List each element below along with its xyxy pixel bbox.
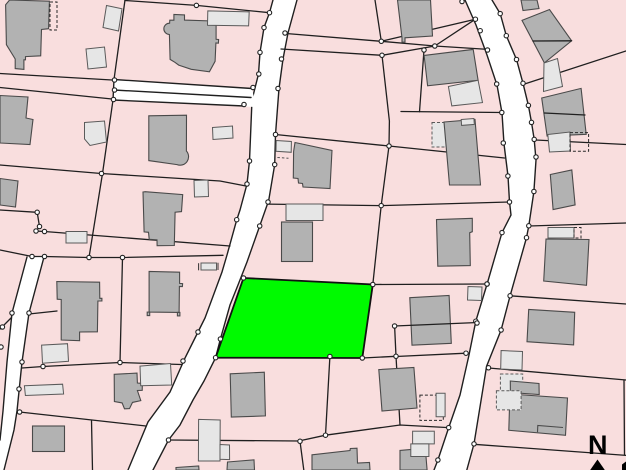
svg-text:N: N [588, 430, 608, 460]
